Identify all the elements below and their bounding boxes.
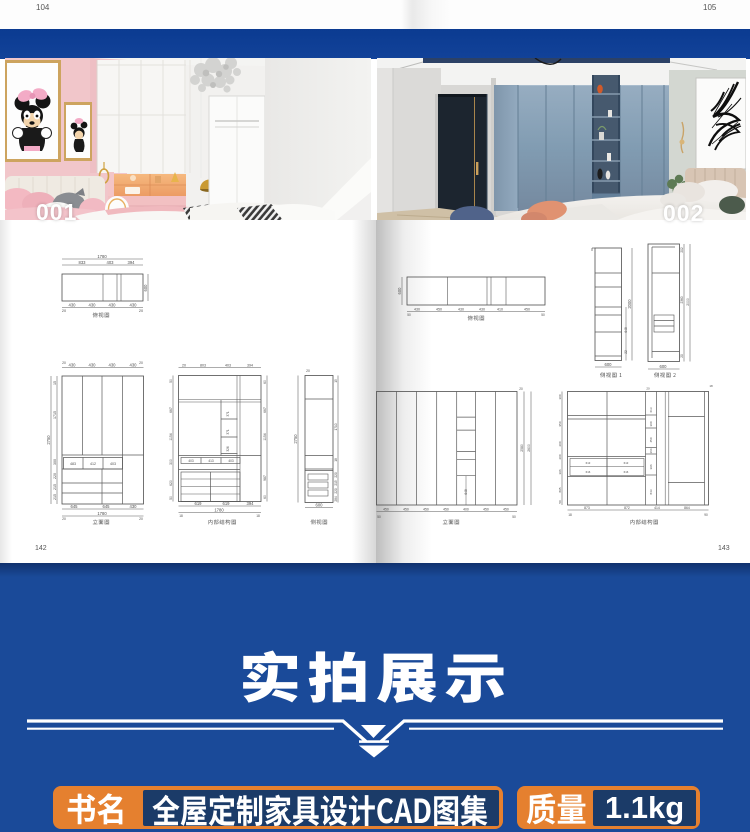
svg-text:300: 300: [53, 459, 57, 465]
svg-text:450: 450: [483, 507, 489, 511]
svg-text:18: 18: [334, 458, 338, 462]
svg-text:430: 430: [130, 362, 138, 367]
svg-text:2580: 2580: [520, 444, 524, 452]
svg-text:215: 215: [334, 480, 338, 486]
svg-text:403: 403: [188, 459, 194, 463]
svg-text:20: 20: [519, 387, 523, 391]
svg-text:20: 20: [182, 363, 186, 367]
svg-text:18: 18: [179, 514, 183, 518]
svg-text:403: 403: [107, 260, 115, 265]
svg-text:843: 843: [649, 489, 653, 494]
svg-text:142: 142: [35, 545, 47, 552]
svg-text:430: 430: [109, 302, 117, 307]
svg-text:50: 50: [512, 515, 516, 519]
svg-text:215: 215: [53, 494, 57, 500]
svg-text:950: 950: [558, 421, 562, 426]
svg-text:600: 600: [605, 362, 613, 367]
svg-text:20: 20: [139, 517, 143, 521]
svg-text:413: 413: [208, 459, 214, 463]
svg-text:430: 430: [69, 362, 77, 367]
svg-text:450: 450: [443, 507, 449, 511]
svg-text:430: 430: [458, 307, 464, 311]
svg-text:450: 450: [436, 307, 442, 311]
svg-text:2000: 2000: [627, 299, 632, 309]
svg-text:619: 619: [195, 501, 203, 506]
svg-text:1154: 1154: [263, 433, 267, 440]
svg-text:403: 403: [225, 363, 231, 367]
svg-text:20: 20: [62, 361, 66, 365]
svg-text:200: 200: [558, 454, 562, 459]
svg-text:1715: 1715: [53, 411, 57, 419]
svg-text:430: 430: [89, 302, 97, 307]
svg-text:430: 430: [89, 362, 97, 367]
svg-text:1780: 1780: [97, 254, 107, 259]
svg-text:50: 50: [169, 379, 173, 383]
svg-text:620: 620: [169, 480, 173, 486]
svg-text:202: 202: [680, 247, 684, 253]
svg-text:414: 414: [654, 506, 660, 510]
svg-text:60: 60: [263, 380, 267, 384]
svg-text:1154: 1154: [169, 433, 173, 440]
svg-text:613: 613: [624, 461, 629, 465]
svg-text:873: 873: [584, 506, 590, 510]
svg-text:394: 394: [247, 363, 253, 367]
svg-text:616: 616: [586, 470, 591, 474]
svg-text:50: 50: [377, 515, 381, 519]
svg-text:164: 164: [649, 448, 653, 453]
svg-text:50: 50: [407, 313, 411, 317]
svg-text:430: 430: [479, 307, 485, 311]
svg-text:450: 450: [423, 507, 429, 511]
svg-text:410: 410: [497, 307, 503, 311]
svg-text:613: 613: [586, 461, 591, 465]
svg-text:20: 20: [139, 361, 143, 365]
svg-text:600: 600: [397, 287, 402, 295]
svg-text:200: 200: [558, 441, 562, 446]
svg-text:600: 600: [660, 364, 668, 369]
svg-text:2600: 2600: [527, 444, 531, 452]
svg-text:600: 600: [316, 502, 324, 507]
svg-text:648: 648: [624, 327, 628, 333]
svg-text:987: 987: [263, 475, 267, 481]
svg-text:90: 90: [704, 513, 708, 517]
svg-text:667: 667: [169, 407, 173, 413]
svg-text:2750: 2750: [46, 435, 51, 445]
svg-text:20: 20: [62, 309, 66, 313]
svg-text:220: 220: [334, 488, 338, 494]
svg-text:450: 450: [503, 507, 509, 511]
svg-text:895: 895: [558, 487, 562, 492]
svg-text:50: 50: [169, 496, 173, 500]
svg-text:20: 20: [680, 354, 684, 358]
svg-text:300: 300: [649, 421, 653, 426]
svg-text:450: 450: [403, 507, 409, 511]
svg-text:18: 18: [709, 384, 713, 388]
svg-text:403: 403: [228, 459, 234, 463]
svg-text:300: 300: [558, 394, 562, 399]
svg-text:20: 20: [139, 309, 143, 313]
svg-text:394: 394: [247, 501, 255, 506]
svg-text:371: 371: [226, 411, 230, 417]
svg-text:284: 284: [334, 496, 338, 502]
svg-text:143: 143: [718, 545, 730, 552]
svg-text:483: 483: [70, 462, 76, 466]
svg-text:220: 220: [334, 472, 338, 478]
svg-text:1710: 1710: [334, 423, 338, 430]
svg-text:15: 15: [334, 379, 338, 383]
svg-text:2750: 2750: [293, 434, 298, 444]
svg-text:15: 15: [53, 381, 57, 385]
svg-text:803: 803: [200, 363, 206, 367]
svg-text:394: 394: [128, 260, 136, 265]
svg-text:300: 300: [169, 459, 173, 465]
svg-text:430: 430: [109, 362, 117, 367]
svg-text:371: 371: [226, 429, 230, 435]
svg-text:220: 220: [53, 473, 57, 479]
svg-text:20: 20: [306, 369, 310, 373]
svg-text:613: 613: [649, 407, 653, 412]
svg-text:18: 18: [256, 514, 260, 518]
svg-text:430: 430: [414, 307, 420, 311]
svg-text:864: 864: [684, 506, 690, 510]
svg-text:833: 833: [79, 260, 87, 265]
svg-text:215: 215: [53, 484, 57, 490]
svg-text:645: 645: [71, 504, 79, 509]
svg-text:648: 648: [464, 489, 468, 495]
svg-text:450: 450: [383, 507, 389, 511]
svg-text:403: 403: [110, 462, 116, 466]
svg-text:2360: 2360: [680, 296, 684, 303]
svg-text:430: 430: [69, 302, 77, 307]
svg-text:430: 430: [130, 302, 138, 307]
svg-text:450: 450: [649, 437, 653, 442]
svg-text:50: 50: [541, 313, 545, 317]
svg-text:667: 667: [263, 407, 267, 413]
svg-text:20: 20: [62, 517, 66, 521]
svg-text:326: 326: [226, 446, 230, 452]
svg-text:20: 20: [646, 387, 650, 391]
svg-text:450: 450: [524, 307, 530, 311]
svg-text:619: 619: [223, 501, 231, 506]
svg-text:430: 430: [130, 504, 138, 509]
svg-text:645: 645: [103, 504, 111, 509]
svg-text:400: 400: [463, 507, 469, 511]
svg-text:18: 18: [568, 513, 572, 517]
svg-text:60: 60: [263, 495, 267, 499]
svg-text:600: 600: [143, 284, 148, 292]
svg-text:396: 396: [558, 469, 562, 474]
svg-text:396: 396: [649, 464, 653, 469]
svg-text:2000: 2000: [686, 298, 690, 306]
svg-text:412: 412: [90, 462, 96, 466]
svg-text:1780: 1780: [214, 507, 224, 512]
svg-text:1780: 1780: [97, 511, 107, 516]
svg-text:872: 872: [624, 506, 630, 510]
svg-text:22: 22: [624, 350, 628, 354]
svg-text:616: 616: [624, 470, 629, 474]
svg-text:50: 50: [558, 500, 562, 504]
